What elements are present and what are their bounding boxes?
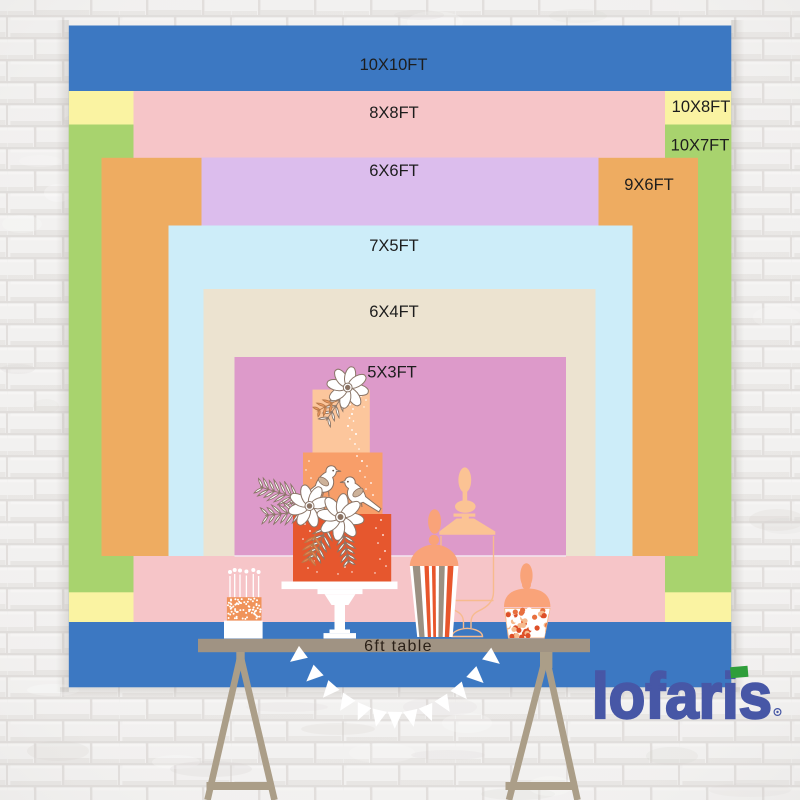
svg-text:6ft table: 6ft table — [364, 638, 433, 655]
svg-text:9X6FT: 9X6FT — [624, 176, 674, 194]
svg-text:10X10FT: 10X10FT — [360, 56, 428, 74]
svg-text:10X8FT: 10X8FT — [672, 98, 731, 116]
svg-text:5X3FT: 5X3FT — [367, 363, 417, 381]
svg-text:10X7FT: 10X7FT — [671, 136, 730, 154]
svg-text:6X4FT: 6X4FT — [369, 303, 419, 321]
svg-text:6X6FT: 6X6FT — [369, 162, 419, 180]
svg-text:7X5FT: 7X5FT — [369, 237, 419, 255]
svg-text:8X8FT: 8X8FT — [369, 104, 419, 122]
